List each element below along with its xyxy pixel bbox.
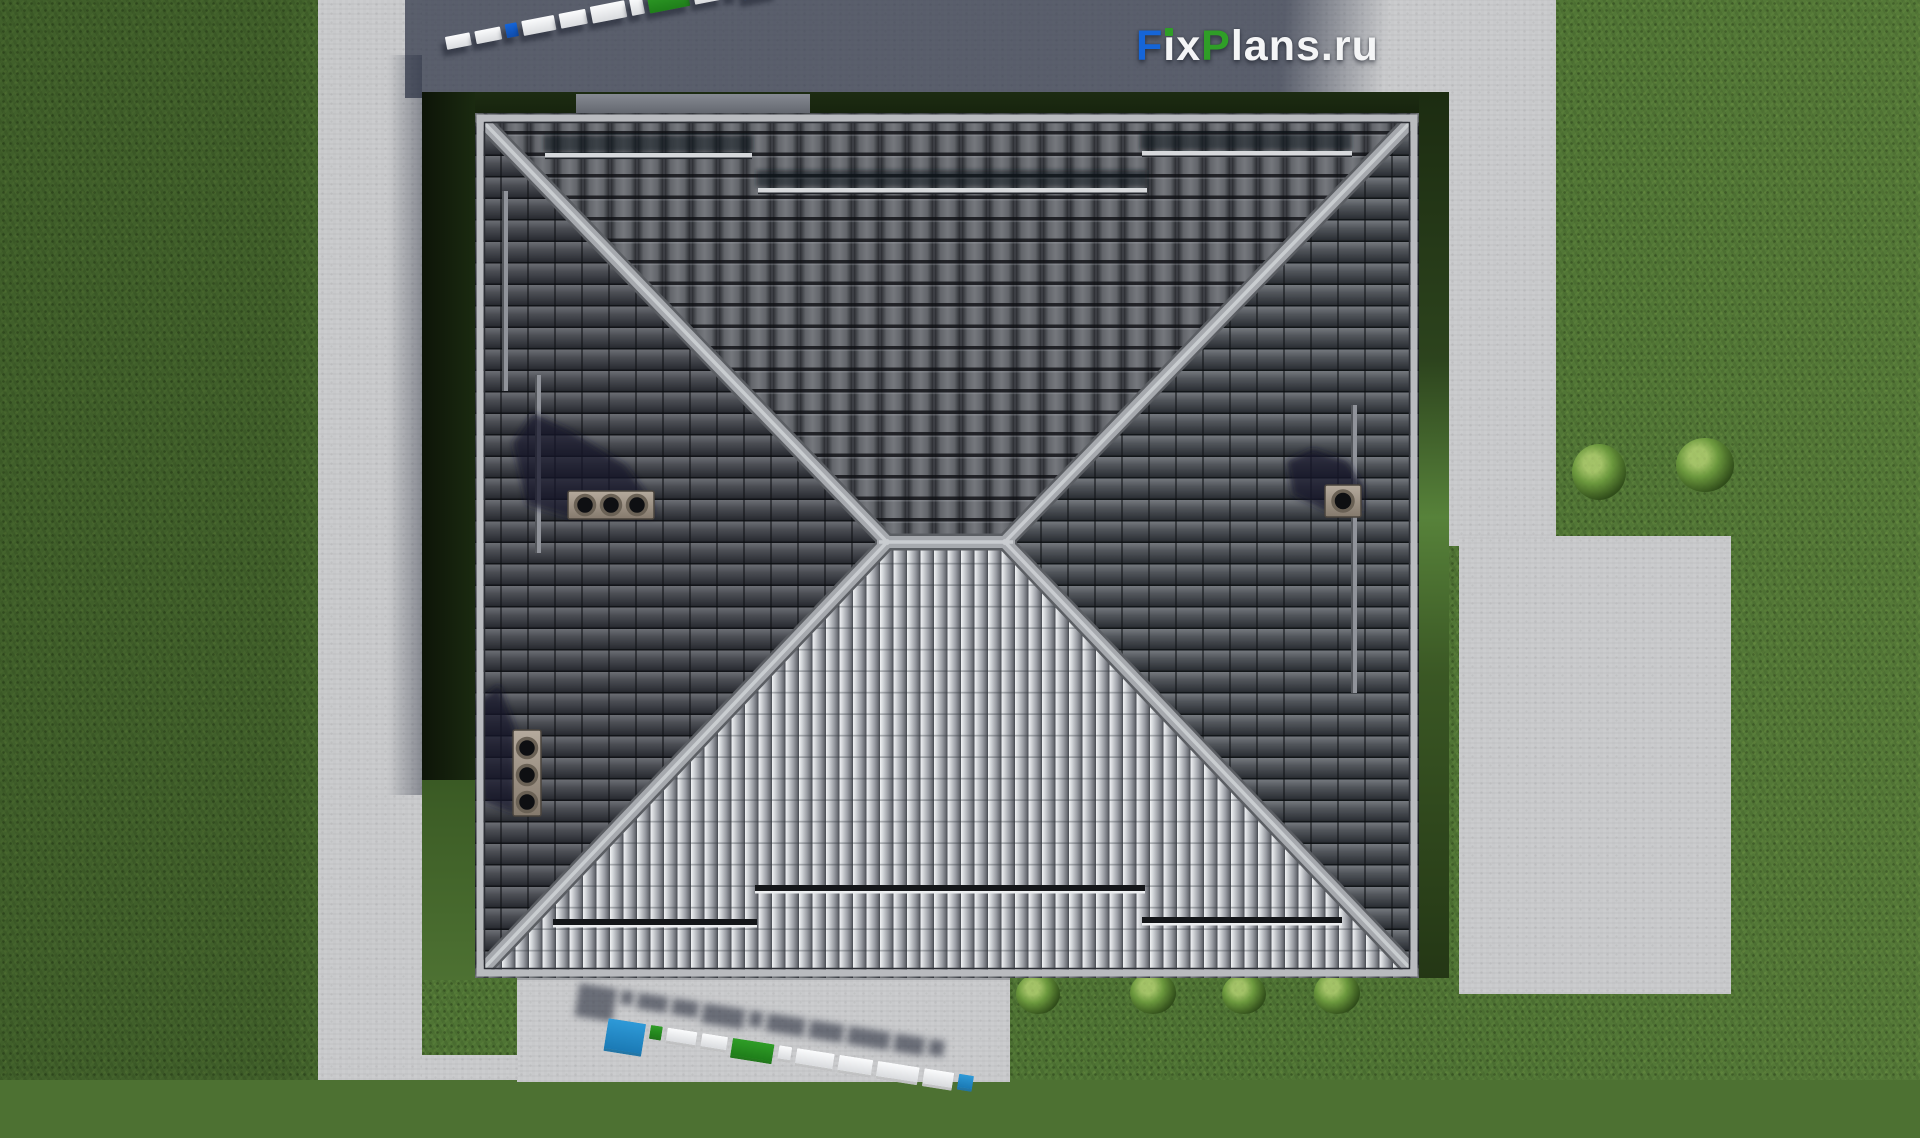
left-walkway (318, 0, 422, 1080)
porch-roof-band (576, 94, 810, 114)
flue (518, 766, 537, 785)
bush (1314, 972, 1360, 1014)
logo-letters-ix: ix (1163, 22, 1201, 71)
flue (518, 793, 537, 812)
flue (576, 496, 595, 515)
logo-i-dot (1165, 28, 1173, 36)
logo-letter-f: F (1136, 22, 1163, 70)
lawn-bush (1676, 438, 1734, 492)
flue (602, 496, 621, 515)
site-logo: FixPlans.ru (1136, 22, 1466, 74)
logo-letter-p: P (1201, 22, 1231, 70)
right-patio (1459, 536, 1731, 994)
bush (1130, 972, 1176, 1014)
logo-letters-rest: lans.ru (1231, 22, 1379, 70)
flue (1333, 491, 1353, 511)
hedge-west-shadowed (422, 92, 475, 784)
right-walkway (1448, 88, 1556, 546)
hedge-east (1419, 92, 1449, 978)
lawn-bush (1572, 444, 1626, 500)
flue (628, 496, 647, 515)
bush (1016, 974, 1060, 1014)
hipped-roof (475, 113, 1419, 978)
bottom-terrace (517, 978, 1010, 1082)
grass-strip-west (422, 780, 475, 980)
bush (1222, 974, 1266, 1014)
bottom-terrace-extension (422, 1055, 518, 1080)
flue (518, 739, 537, 758)
aerial-house-render: { "brand": { "logo_text": "FixPlans.ru",… (0, 0, 1920, 1080)
